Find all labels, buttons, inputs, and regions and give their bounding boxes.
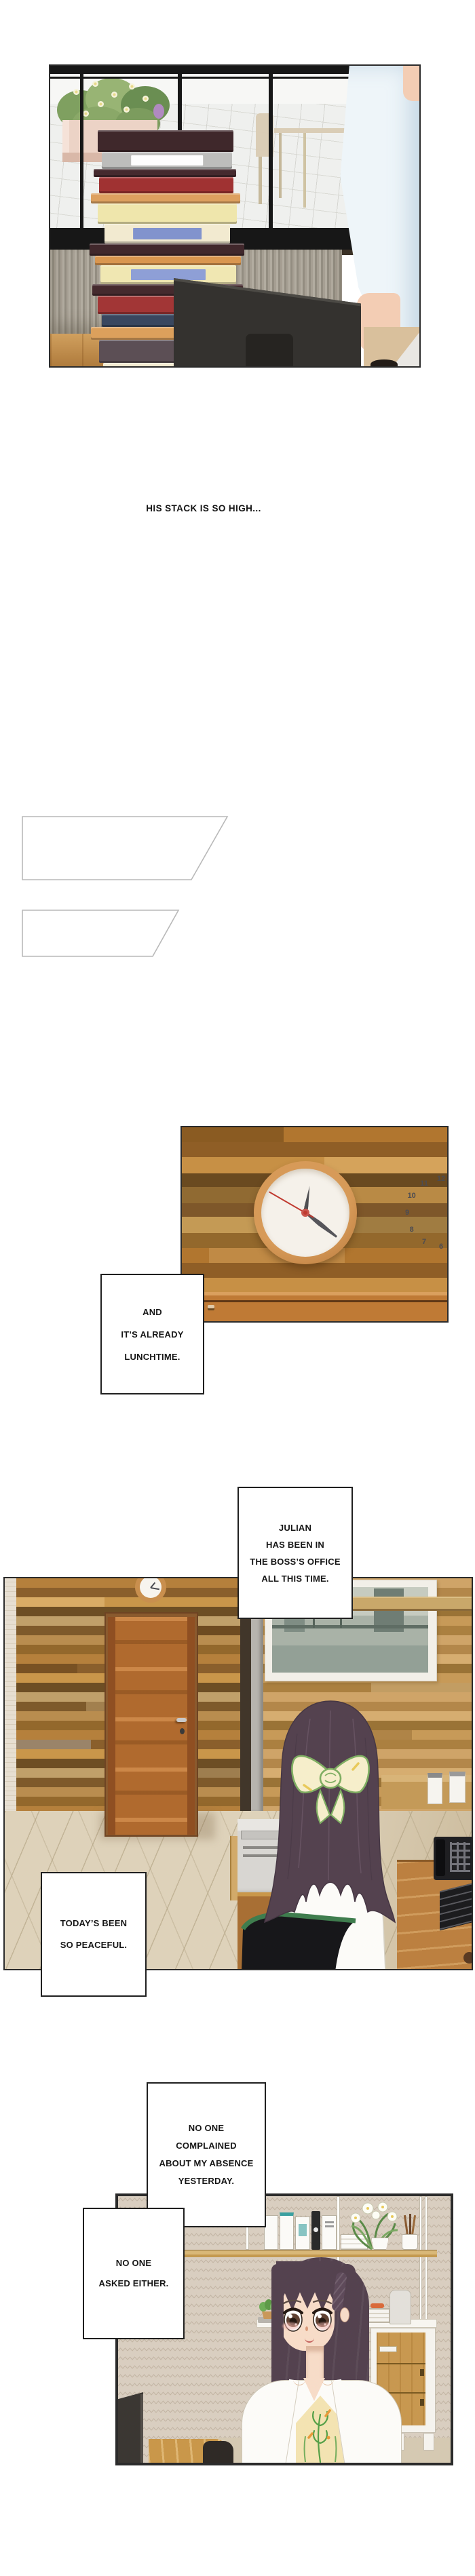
book xyxy=(104,224,230,243)
purple-flowers xyxy=(153,104,164,119)
desk-phone xyxy=(434,1837,473,1880)
narration-stack: HIS STACK IS SO HIGH... xyxy=(119,503,288,513)
plate-stack xyxy=(368,2303,389,2324)
book xyxy=(98,203,237,224)
window-mullion xyxy=(269,66,273,249)
speech-bubble-peaceful: TODAY’S BEEN SO PEACEFUL. xyxy=(41,1872,147,1997)
cup xyxy=(427,1773,442,1804)
shelf-post xyxy=(425,2196,427,2328)
book-label xyxy=(131,155,203,165)
hair-tuft xyxy=(370,359,398,368)
speech-bubble-julian: JULIAN HAS BEEN IN THE BOSS’S OFFICE ALL… xyxy=(237,1487,353,1619)
book xyxy=(98,130,233,152)
book-label xyxy=(131,269,206,281)
girl-neck xyxy=(306,2346,324,2383)
speech-bubble-asked: NO ONE ASKED EITHER. xyxy=(83,2208,185,2339)
file-box xyxy=(280,2212,294,2250)
book xyxy=(91,193,240,203)
panel-book-stack xyxy=(49,64,421,368)
keyboard xyxy=(440,1883,473,1931)
cabinet-groove xyxy=(182,1300,449,1302)
panel-clock: 12 1 2 3 4 5 6 7 8 9 10 11 xyxy=(180,1126,449,1323)
book-label xyxy=(133,228,202,239)
clock-number: 9 xyxy=(405,1209,409,1217)
brushes xyxy=(404,2215,416,2236)
comic-page: HIS STACK IS SO HIGH... 12 1 2 3 4 5 6 7… xyxy=(0,0,475,2576)
clock-number: 12 xyxy=(437,1175,445,1183)
clock-number: 10 xyxy=(408,1192,416,1200)
empty-speech-trapezoid-1 xyxy=(20,814,232,883)
sideboard-cabinet xyxy=(182,1292,449,1323)
blush xyxy=(282,2322,299,2330)
girl-back-view xyxy=(239,1677,422,1970)
speech-bubble-lunchtime: AND IT’S ALREADY LUNCHTIME. xyxy=(100,1274,204,1394)
cabinet-handle xyxy=(208,1305,214,1308)
clock-number: 11 xyxy=(420,1179,428,1188)
drawer-handle xyxy=(379,2346,397,2352)
coworker-neck xyxy=(403,66,421,101)
door-handle xyxy=(176,1718,187,1722)
book xyxy=(95,256,241,265)
file-box xyxy=(264,2215,278,2250)
girl-ear xyxy=(340,2307,349,2322)
book xyxy=(90,243,244,256)
book xyxy=(102,152,232,169)
file-box xyxy=(295,2217,310,2250)
empty-speech-trapezoid-2 xyxy=(20,908,183,960)
book xyxy=(94,169,236,177)
book xyxy=(100,265,236,284)
dark-bag xyxy=(203,2441,233,2465)
black-binder xyxy=(311,2211,320,2250)
cabinet-leg xyxy=(423,2433,434,2451)
monitor-stand xyxy=(246,334,293,368)
door-keyhole xyxy=(180,1728,185,1734)
canister xyxy=(389,2290,411,2324)
clock-number: 6 xyxy=(439,1243,443,1251)
blush xyxy=(316,2322,332,2330)
boss-office-door xyxy=(108,1617,195,1835)
clock-number: 8 xyxy=(410,1226,414,1234)
book-label xyxy=(132,367,204,368)
label-box xyxy=(322,2215,337,2250)
mug xyxy=(463,1952,473,1964)
speech-bubble-complained: NO ONE COMPLAINED ABOUT MY ABSENCE YESTE… xyxy=(147,2082,266,2227)
plant-pot xyxy=(371,2238,389,2250)
nose xyxy=(305,2326,308,2331)
clock-number: 7 xyxy=(422,1238,426,1246)
book xyxy=(99,177,233,193)
brush-cup xyxy=(402,2234,418,2250)
cup xyxy=(449,1772,465,1803)
shelf-post xyxy=(419,2196,422,2328)
monitor-back xyxy=(118,2392,143,2465)
clock-hub xyxy=(301,1209,309,1217)
